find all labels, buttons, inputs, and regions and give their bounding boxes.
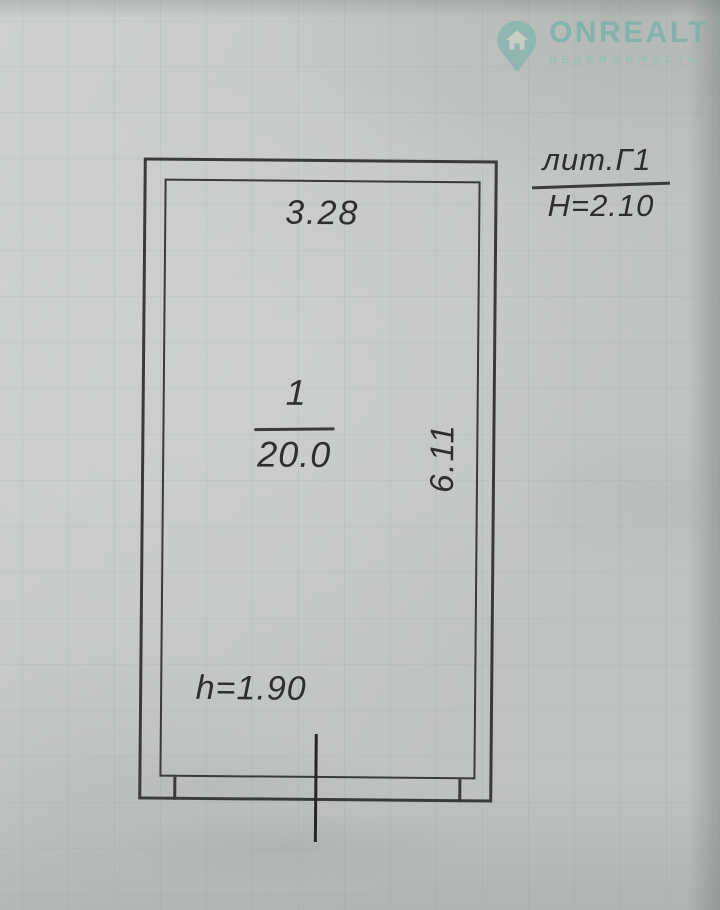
ceiling-height-label: h=1.90	[180, 669, 322, 709]
gate-axis-line	[314, 734, 318, 842]
gate-jamb-left	[173, 777, 176, 800]
floor-plan: 3.28 1 20.0 6.11 h=1.90	[0, 0, 720, 910]
width-dimension: 3.28	[260, 193, 384, 233]
gate-jamb-right	[458, 779, 461, 802]
scanned-floor-plan-page: ONREALT НЕДВИЖИМОСТЬ лит.Г1 H=2.10 3.28 …	[0, 0, 720, 910]
room-number: 1	[246, 371, 346, 414]
room-area: 20.0	[244, 433, 344, 476]
depth-dimension: 6.11	[423, 398, 462, 518]
